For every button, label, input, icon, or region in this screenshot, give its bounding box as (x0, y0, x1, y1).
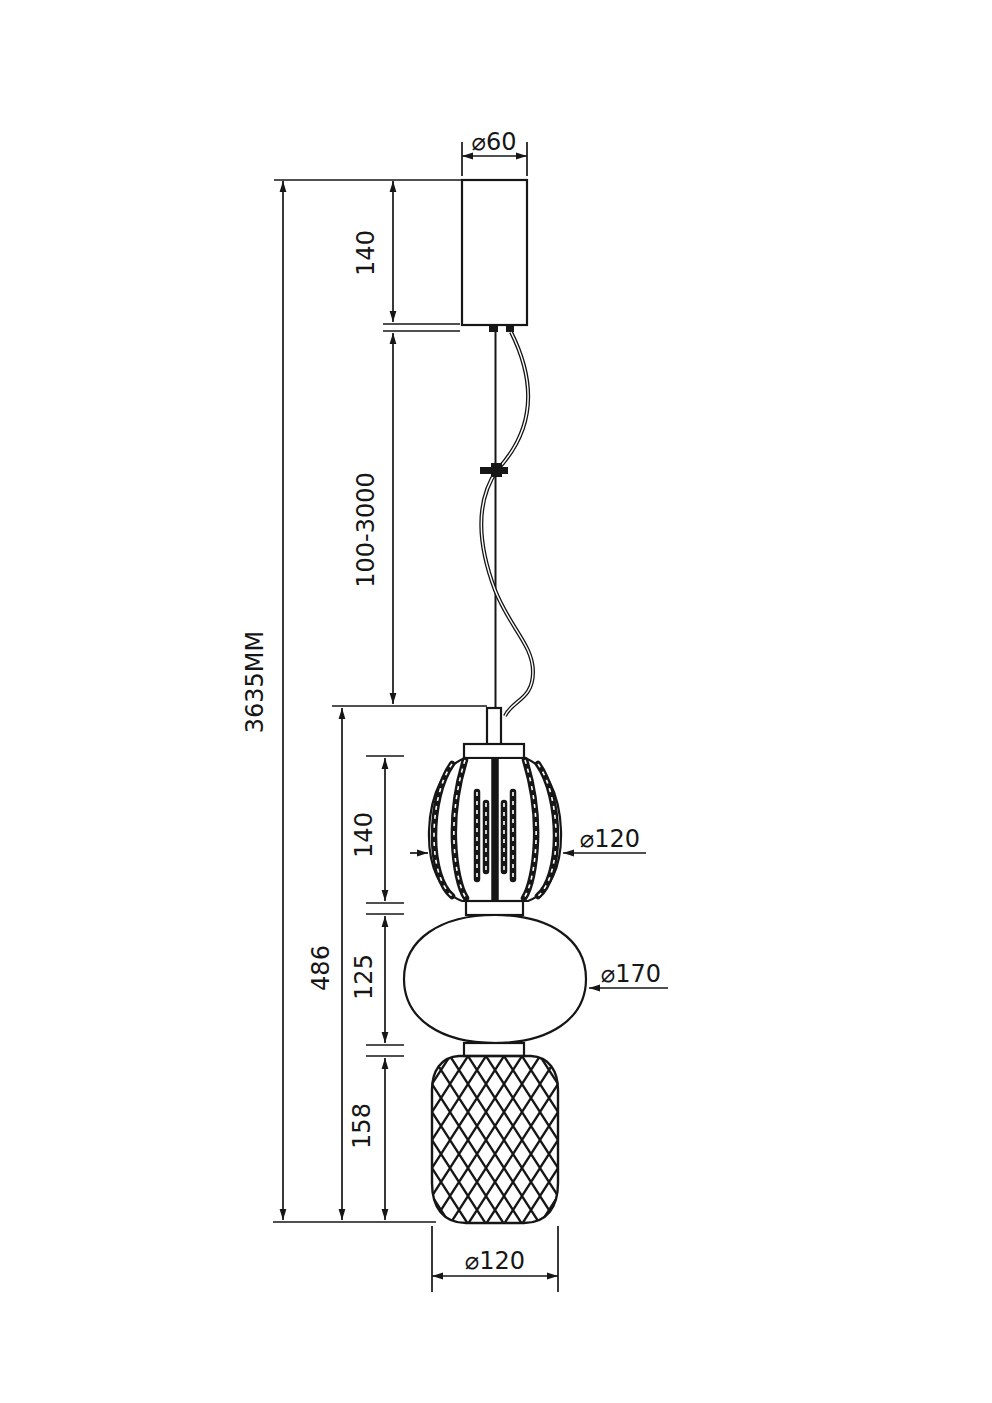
stem-cap (464, 744, 524, 758)
canopy-group (462, 180, 527, 332)
power-cable-outline (481, 332, 533, 716)
dim-canopy-height: 140 (352, 181, 460, 331)
dim-label-top-shade-diameter: ⌀120 (580, 825, 640, 853)
connector-upper (466, 901, 523, 915)
stem (487, 708, 501, 746)
dim-bottom-shade-diameter: ⌀120 (432, 1226, 558, 1292)
dim-label-bottom-shade-height: 158 (348, 1103, 376, 1149)
dim-label-bottom-shade-diameter: ⌀120 (465, 1247, 525, 1275)
dim-label-suspension-length: 100-3000 (352, 472, 380, 588)
dim-label-top-shade-height: 140 (350, 812, 378, 858)
cord-grip-block (491, 463, 502, 477)
dim-label-middle-shade-diameter: ⌀170 (601, 960, 661, 988)
middle-oval-shade (404, 915, 586, 1043)
dim-top-shade-height: 140 (350, 758, 385, 901)
ceiling-canopy (462, 180, 527, 325)
stem-group (464, 708, 524, 758)
connector-lower (464, 1043, 524, 1056)
dim-canopy-diameter: ⌀60 (462, 128, 527, 176)
dim-total-height: 3635MM (241, 181, 283, 1220)
drawing-page: ⌀60 3635MM 140 100-3000 486 140 1 (0, 0, 992, 1403)
power-cable (481, 332, 533, 716)
dim-middle-shade-diameter: ⌀170 (589, 960, 668, 988)
dim-middle-shade-height: 125 (350, 916, 385, 1043)
power-cable-core (481, 332, 533, 716)
bottom-shade-outline (432, 1056, 558, 1223)
dim-label-canopy-height: 140 (352, 230, 380, 276)
dim-label-total-height: 3635MM (241, 631, 269, 734)
dim-suspension-length: 100-3000 (352, 333, 393, 704)
dim-label-middle-shade-height: 125 (350, 954, 378, 1000)
dim-bottom-shade-height: 158 (348, 1058, 385, 1220)
bottom-mesh-shade (432, 1056, 558, 1223)
dim-label-canopy-diameter: ⌀60 (472, 128, 517, 156)
top-ribbed-shade (429, 758, 561, 901)
pendant-lamp-drawing: ⌀60 3635MM 140 100-3000 486 140 1 (0, 0, 992, 1403)
wire-nub-right (506, 325, 514, 332)
wire-nub-left (489, 325, 498, 332)
dim-label-body-height: 486 (307, 945, 335, 991)
